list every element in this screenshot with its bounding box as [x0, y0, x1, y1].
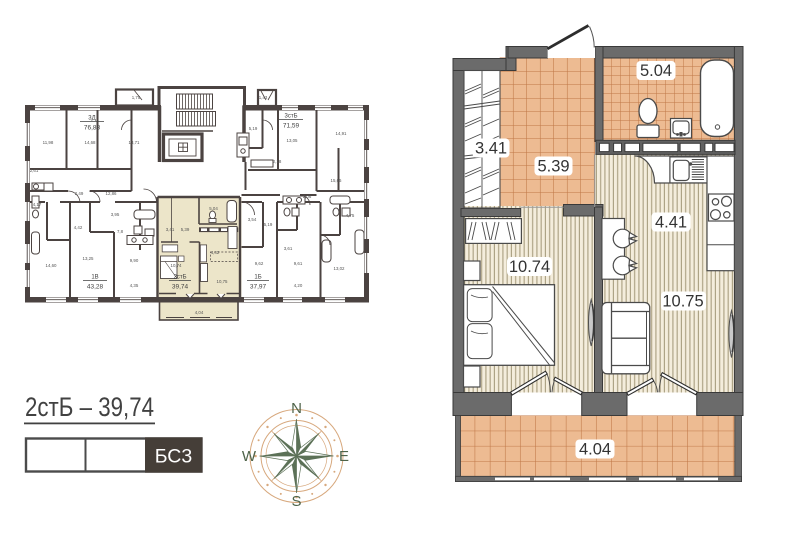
svg-text:4.41: 4.41: [655, 214, 687, 232]
svg-text:4,35: 4,35: [130, 283, 139, 288]
svg-text:14,91: 14,91: [336, 131, 348, 136]
svg-text:15,66: 15,66: [331, 178, 343, 183]
svg-text:S: S: [291, 493, 301, 510]
svg-text:4,17: 4,17: [33, 202, 42, 207]
svg-text:13,71: 13,71: [129, 140, 141, 145]
svg-text:13,05: 13,05: [287, 138, 299, 143]
svg-text:2стБ – 39,74: 2стБ – 39,74: [25, 392, 154, 422]
svg-text:3стБ: 3стБ: [284, 114, 297, 120]
svg-text:1В: 1В: [91, 275, 98, 281]
svg-text:39,74: 39,74: [172, 284, 189, 291]
svg-text:5.39: 5.39: [537, 158, 569, 176]
svg-text:14,68: 14,68: [85, 140, 97, 145]
svg-text:10,74: 10,74: [171, 263, 183, 268]
svg-text:1Б: 1Б: [254, 275, 261, 281]
svg-text:11,98: 11,98: [43, 140, 54, 145]
svg-text:14,60: 14,60: [46, 263, 58, 268]
svg-text:10,75: 10,75: [217, 279, 229, 284]
svg-text:3,54: 3,54: [248, 217, 257, 222]
svg-text:W: W: [242, 448, 257, 465]
svg-text:3,41: 3,41: [166, 227, 175, 232]
svg-text:10.75: 10.75: [662, 293, 703, 311]
svg-text:71,59: 71,59: [283, 123, 300, 130]
svg-text:3Д: 3Д: [88, 116, 95, 122]
svg-text:9,62: 9,62: [255, 261, 264, 266]
svg-text:2стБ: 2стБ: [173, 275, 186, 281]
svg-text:13,25: 13,25: [83, 256, 95, 261]
svg-text:2,49: 2,49: [75, 191, 84, 196]
svg-text:2,61: 2,61: [30, 168, 39, 173]
svg-text:5,19: 5,19: [264, 222, 273, 227]
svg-text:3.41: 3.41: [475, 140, 507, 158]
svg-text:1,75: 1,75: [132, 95, 141, 100]
svg-text:9,61: 9,61: [294, 261, 303, 266]
svg-text:2,18: 2,18: [273, 159, 282, 164]
svg-text:10.74: 10.74: [509, 258, 550, 276]
svg-text:76,88: 76,88: [84, 125, 101, 132]
svg-text:3,61: 3,61: [284, 246, 293, 251]
svg-text:5,39: 5,39: [181, 227, 190, 232]
svg-text:4,42: 4,42: [74, 225, 83, 230]
svg-text:БС3: БС3: [155, 446, 193, 468]
svg-text:9,90: 9,90: [130, 258, 139, 263]
svg-text:2,06: 2,06: [303, 194, 312, 199]
svg-text:43,28: 43,28: [87, 284, 104, 291]
svg-text:N: N: [291, 400, 302, 417]
svg-text:5,04: 5,04: [209, 206, 218, 211]
svg-text:4,42: 4,42: [211, 250, 220, 255]
svg-text:7,8: 7,8: [117, 229, 124, 234]
svg-text:E: E: [339, 448, 349, 465]
svg-text:5.04: 5.04: [640, 62, 672, 80]
svg-text:4,04: 4,04: [195, 310, 204, 315]
svg-text:13,02: 13,02: [334, 266, 346, 271]
svg-text:4,75: 4,75: [346, 213, 355, 218]
svg-text:1,43: 1,43: [259, 95, 268, 100]
svg-text:5,19: 5,19: [249, 126, 258, 131]
svg-text:4.04: 4.04: [579, 441, 611, 459]
svg-text:4,20: 4,20: [294, 283, 303, 288]
svg-text:12,86: 12,86: [106, 191, 118, 196]
svg-text:3,95: 3,95: [111, 212, 120, 217]
svg-text:37,97: 37,97: [250, 284, 267, 291]
